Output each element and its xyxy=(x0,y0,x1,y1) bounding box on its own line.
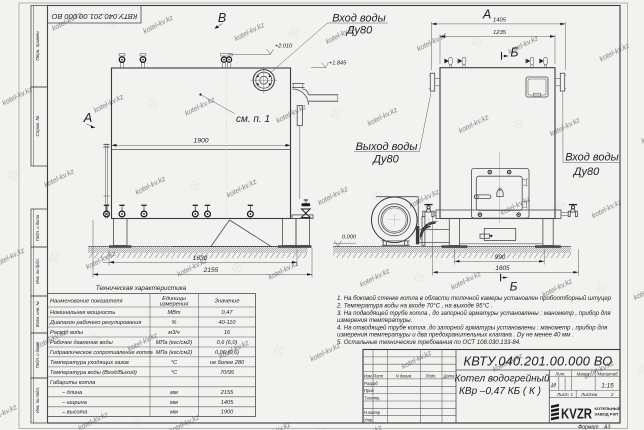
svg-text:Котел водогрейный: Котел водогрейный xyxy=(454,374,550,385)
svg-text:Перв. примен: Перв. примен xyxy=(35,31,40,61)
svg-text:измерения: измерения xyxy=(160,302,188,308)
svg-text:°С: °С xyxy=(171,370,178,376)
svg-text:измерения температуры.: измерения температуры. xyxy=(337,318,412,324)
svg-text:16: 16 xyxy=(224,330,231,336)
svg-text:Ду80: Ду80 xyxy=(572,166,600,178)
svg-text:0.000: 0.000 xyxy=(342,234,357,240)
svg-text:1900: 1900 xyxy=(221,410,234,416)
svg-text:Температура воды (Вход/Выход): Температура воды (Вход/Выход) xyxy=(50,370,137,376)
svg-text:1630: 1630 xyxy=(193,255,208,262)
svg-text:мм: мм xyxy=(170,390,178,396)
svg-text:КВТУ.040.201.00.000 ВО: КВТУ.040.201.00.000 ВО xyxy=(464,354,613,369)
svg-text:МВт: МВт xyxy=(167,310,180,316)
svg-text:70/95: 70/95 xyxy=(220,370,235,376)
svg-text:2: 2 xyxy=(610,392,614,397)
svg-text:Инв. № дубл.: Инв. № дубл. xyxy=(35,258,40,284)
svg-text:Взам. инв. №: Взам. инв. № xyxy=(35,301,40,327)
svg-text:мм: мм xyxy=(170,400,178,406)
svg-text:Наименование показателя: Наименование показателя xyxy=(50,299,123,305)
svg-text:1405: 1405 xyxy=(493,18,507,24)
svg-text:Т.контр.: Т.контр. xyxy=(364,396,381,401)
svg-text:м3/ч: м3/ч xyxy=(168,330,179,336)
svg-text:А: А xyxy=(482,8,491,22)
svg-text:не более 280: не более 280 xyxy=(210,360,245,366)
svg-text:2155: 2155 xyxy=(220,390,234,396)
svg-text:А: А xyxy=(83,110,93,125)
svg-text:2. Температура воды на входе: 2. Температура воды на входе 70°С , на в… xyxy=(336,304,493,310)
svg-text:Рабочее давление воды: Рабочее давление воды xyxy=(50,340,113,346)
svg-text:измерения температуры и два пр: измерения температуры и два предохраните… xyxy=(337,333,574,339)
svg-text:0,6 (6,0): 0,6 (6,0) xyxy=(217,340,238,346)
svg-text:Изм.Лист: Изм.Лист xyxy=(364,373,384,378)
svg-text:Температура уходящих газов: Температура уходящих газов xyxy=(50,360,129,366)
svg-text:1. На боковой стенке котла в: 1. На боковой стенке котла в области топ… xyxy=(337,295,612,302)
svg-text:Дата: Дата xyxy=(443,373,456,378)
svg-text:1:15: 1:15 xyxy=(601,383,614,390)
svg-text:Расход воды: Расход воды xyxy=(50,330,83,336)
svg-text:N докум.: N докум. xyxy=(396,373,413,378)
svg-text:1235: 1235 xyxy=(493,30,507,36)
svg-text:Лит.: Лит. xyxy=(554,371,565,376)
svg-text:А3: А3 xyxy=(603,425,610,430)
svg-text:см. п. 1: см. п. 1 xyxy=(236,114,270,125)
svg-text:%: % xyxy=(172,320,177,326)
svg-text:Разраб: Разраб xyxy=(364,381,378,386)
svg-text:– ширина: – ширина xyxy=(61,400,87,406)
svg-text:°С: °С xyxy=(171,360,178,366)
svg-text:5. Остальные технические треб: 5. Остальные технические требования по О… xyxy=(337,340,521,346)
svg-text:Б: Б xyxy=(510,46,518,60)
svg-text:Вход воды: Вход воды xyxy=(332,13,385,25)
svg-text:4. На отводящей трубе котла ,: 4. На отводящей трубе котла ,до запорной… xyxy=(337,325,608,332)
svg-text:Вход воды: Вход воды xyxy=(565,152,618,164)
svg-text:КВр –0,47 КБ ( К ): КВр –0,47 КБ ( К ) xyxy=(459,386,541,397)
svg-text:1405: 1405 xyxy=(221,400,234,406)
svg-text:Утв.: Утв. xyxy=(364,418,373,423)
svg-text:КВТУ.040.201.00.000 ВО: КВТУ.040.201.00.000 ВО xyxy=(52,12,138,21)
svg-text:Б: Б xyxy=(510,280,518,294)
svg-text:Ду80: Ду80 xyxy=(345,25,373,37)
svg-text:Справ. №: Справ. № xyxy=(35,116,40,137)
svg-text:ЗАВОД РЭП: ЗАВОД РЭП xyxy=(595,411,619,416)
svg-text:Подп. и дата: Подп. и дата xyxy=(35,214,40,241)
svg-text:Масса: Масса xyxy=(577,371,590,376)
svg-text:Листов: Листов xyxy=(580,392,598,397)
svg-text:Подп.: Подп. xyxy=(426,373,437,378)
svg-text:КОТЕЛЬНЫЙ: КОТЕЛЬНЫЙ xyxy=(595,406,621,411)
svg-text:Выход воды: Выход воды xyxy=(356,141,418,153)
svg-text:Пров: Пров xyxy=(364,388,375,393)
svg-text:1900: 1900 xyxy=(193,138,208,145)
svg-text:Формат: Формат xyxy=(578,425,599,430)
svg-text:Диапазон рабочего регулировани: Диапазон рабочего регулирования xyxy=(49,320,141,326)
svg-text:Значение: Значение xyxy=(215,299,240,305)
svg-text:0,06 (0,6): 0,06 (0,6) xyxy=(215,350,239,356)
svg-text:Номинальная мощность: Номинальная мощность xyxy=(50,310,115,316)
svg-text:МПа (кгс/см2): МПа (кгс/см2) xyxy=(156,340,193,346)
svg-text:Гидравлическое сопротивление к: Гидравлическое сопротивление котла xyxy=(50,350,153,356)
svg-text:KVZR: KVZR xyxy=(561,407,592,423)
svg-text:Техническая характеристика: Техническая характеристика xyxy=(96,285,187,292)
svg-text:– высота: – высота xyxy=(61,410,87,416)
svg-text:Ду80: Ду80 xyxy=(371,154,399,166)
svg-text:+1.845: +1.845 xyxy=(329,61,347,67)
svg-text:Масштаб: Масштаб xyxy=(597,371,618,376)
svg-text:40-110: 40-110 xyxy=(218,320,236,326)
svg-text:Н.контр: Н.контр xyxy=(364,410,381,415)
svg-text:МПа (кгс/см2): МПа (кгс/см2) xyxy=(156,350,193,356)
svg-text:И: И xyxy=(551,383,556,390)
svg-text:В: В xyxy=(218,11,226,25)
svg-text:Подп. и дата: Подп. и дата xyxy=(35,341,40,368)
svg-text:2155: 2155 xyxy=(203,267,219,274)
svg-text:0,47: 0,47 xyxy=(222,310,234,316)
svg-text:+2.010: +2.010 xyxy=(275,44,293,50)
svg-text:990: 990 xyxy=(495,254,506,261)
svg-text:Лист: Лист xyxy=(556,392,569,397)
svg-text:1605: 1605 xyxy=(495,265,510,272)
svg-text:Габариты котла: Габариты котла xyxy=(50,380,95,386)
svg-text:3. На подводящей трубе котла: 3. На подводящей трубе котла , до запорн… xyxy=(337,310,611,317)
svg-text:мм: мм xyxy=(170,410,178,416)
svg-text:Инв. № подл.: Инв. № подл. xyxy=(35,387,40,413)
svg-text:– длина: – длина xyxy=(61,390,82,396)
